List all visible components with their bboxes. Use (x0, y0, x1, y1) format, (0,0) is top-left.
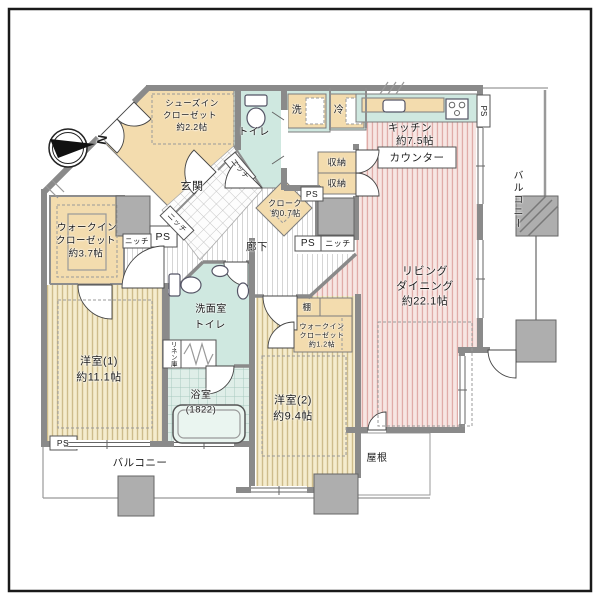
storage-label-bottom: 収納 (327, 180, 346, 189)
linen-label: リネン庫 (169, 341, 176, 367)
ps-label-5: PS (57, 439, 69, 448)
toilet-room-label: トイレ (238, 128, 270, 138)
wic-small-label-3: 約1.2帖 (309, 342, 335, 349)
shoe-closet-label-1: シューズイン (165, 99, 219, 108)
living-label-3: 約22.1帖 (402, 297, 448, 308)
storage-label-top: 収納 (327, 159, 346, 168)
bathroom-label-1: 浴室 (191, 391, 212, 401)
kitchen-sink (383, 100, 405, 112)
washroom-label-1: 洗面室 (195, 305, 227, 315)
bathroom-label-2: (1822) (186, 405, 216, 415)
kitchen-label-1: キッチン (388, 123, 432, 134)
wic-small-label-2: クローゼット (300, 333, 345, 340)
washroom-label-2: トイレ (194, 321, 226, 331)
shoe-closet-label-3: 約2.2帖 (176, 123, 207, 132)
wic-main-label-3: 約3.7帖 (69, 249, 104, 259)
shoe-closet-label-2: クローゼット (163, 111, 217, 120)
roof-label: 屋根 (367, 454, 388, 464)
wic-main-label-1: ウォークイン (57, 223, 117, 233)
toilet-tank-top (245, 95, 267, 106)
entrance-label: 玄関 (181, 182, 204, 193)
roof-outline (352, 433, 430, 495)
niche-label-4: ニッチ (325, 240, 351, 248)
balcony-right-label: バルコニー (511, 170, 521, 230)
shelf-label: 棚 (302, 303, 311, 312)
fridge-label: 冷 (334, 106, 345, 116)
wic-main-label-2: クローゼット (56, 236, 116, 246)
kitchen-label-2: 約7.5帖 (396, 136, 434, 147)
wic-small-label-1: ウォークイン (300, 324, 345, 331)
kitchen-counter (356, 94, 478, 122)
floorplan-page: N シューズイン クローゼット 約2.2帖 トイレ 洗 冷 キッチン 約7.5帖… (0, 0, 600, 600)
niche-label-3: ニッチ (125, 237, 149, 245)
laundry-label: 洗 (292, 106, 303, 116)
ps-label-1: PS (155, 232, 170, 243)
toilet-bowl-washroom (181, 277, 201, 293)
balcony-bottom-label: バルコニー (113, 458, 168, 469)
floorplan-drawing (0, 0, 600, 600)
bedroom2-label-2: 約9.4帖 (273, 412, 313, 423)
corridor-label: 廊下 (246, 242, 268, 253)
bedroom2-label-1: 洋室(2) (274, 396, 312, 407)
counter-label: カウンター (390, 153, 445, 164)
balcony-door-living (488, 350, 516, 378)
ps-label-2: PS (306, 190, 318, 199)
ps-label-kitchen: PS (479, 106, 487, 117)
compass-north-label: N (95, 134, 110, 146)
living-label-2: ダイニング (396, 282, 454, 293)
washroom-sink-1 (212, 266, 228, 277)
living-label-1: リビング (402, 267, 448, 278)
bedroom1-label-2: 約11.1帖 (76, 373, 122, 384)
cloak-label-1: クローク (268, 200, 302, 208)
cloak-label-2: 約0.7帖 (271, 210, 301, 218)
washroom-sink-2 (238, 283, 249, 299)
bedroom1-label-1: 洋室(1) (80, 357, 118, 368)
toilet-tank-washroom (169, 274, 180, 296)
ps-label-3: PS (301, 239, 315, 249)
toilet-bowl-top (247, 108, 265, 128)
